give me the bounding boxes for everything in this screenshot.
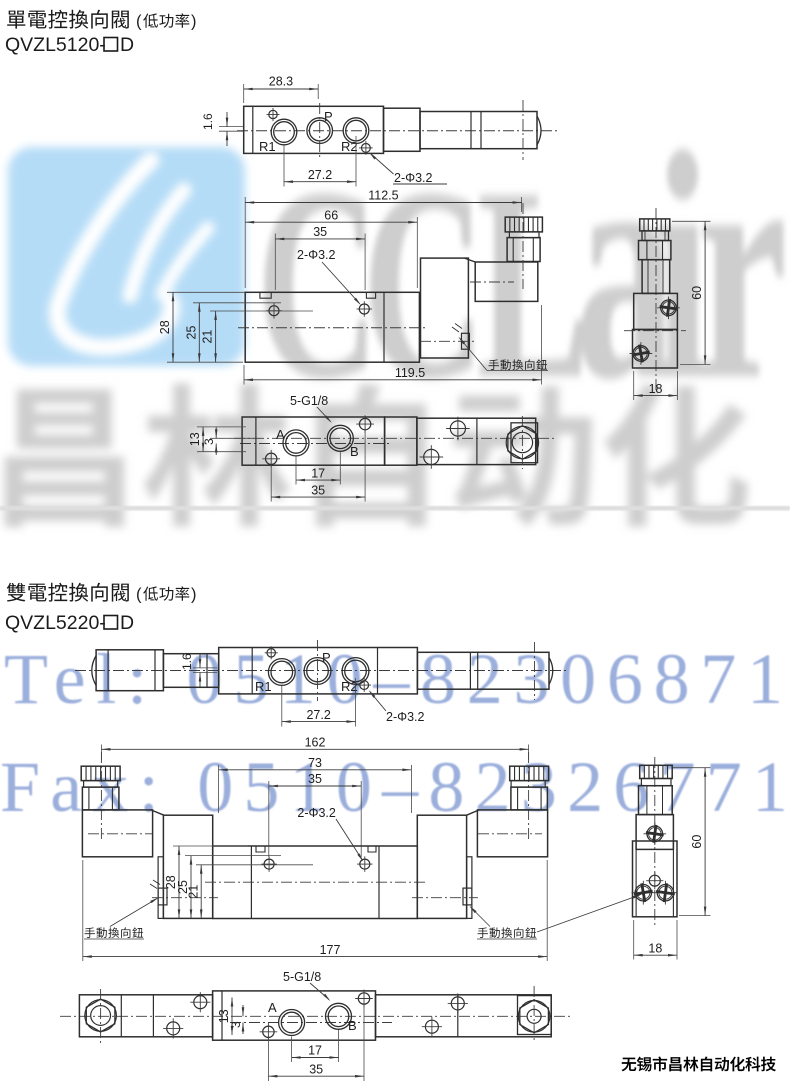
svg-text:(: (: [136, 13, 142, 31]
svg-text:D: D: [120, 612, 134, 634]
svg-text:60: 60: [690, 835, 704, 849]
svg-text:17: 17: [308, 1044, 322, 1058]
svg-text:162: 162: [305, 736, 326, 750]
svg-text:A: A: [268, 1000, 277, 1015]
svg-text:P: P: [324, 109, 333, 124]
svg-text:R2: R2: [341, 139, 358, 154]
svg-text:13: 13: [217, 1009, 231, 1023]
svg-text:21: 21: [186, 885, 200, 899]
svg-text:27.2: 27.2: [306, 708, 330, 722]
svg-text:3: 3: [202, 438, 216, 445]
svg-text:QVZL5220-: QVZL5220-: [5, 612, 106, 634]
svg-text:5-G1/8: 5-G1/8: [283, 970, 321, 984]
svg-text:18: 18: [648, 941, 662, 955]
svg-text:60: 60: [690, 286, 704, 300]
svg-text:2-Φ3.2: 2-Φ3.2: [297, 806, 336, 820]
svg-text:35: 35: [309, 1062, 323, 1076]
svg-text:1.6: 1.6: [201, 113, 215, 130]
svg-text:28: 28: [158, 320, 172, 334]
svg-text:35: 35: [313, 225, 327, 239]
svg-text:21: 21: [201, 330, 215, 344]
svg-text:D: D: [120, 34, 134, 56]
svg-text:25: 25: [184, 326, 198, 340]
svg-text:35: 35: [308, 772, 322, 786]
svg-text:R1: R1: [255, 679, 272, 694]
svg-text:73: 73: [308, 756, 322, 770]
svg-text:B: B: [350, 444, 359, 459]
svg-text:177: 177: [320, 943, 341, 957]
svg-text:2-Φ3.2: 2-Φ3.2: [386, 710, 425, 724]
svg-text:R1: R1: [259, 139, 276, 154]
svg-text:3: 3: [229, 1021, 243, 1028]
svg-text:2-Φ3.2: 2-Φ3.2: [394, 171, 433, 185]
svg-text:35: 35: [311, 483, 325, 497]
svg-text:QVZL5120-: QVZL5120-: [5, 34, 106, 56]
svg-text:17: 17: [311, 466, 325, 480]
svg-text:5-G1/8: 5-G1/8: [290, 394, 328, 408]
svg-text:B: B: [348, 1018, 357, 1033]
svg-text:2-Φ3.2: 2-Φ3.2: [297, 248, 336, 262]
svg-text:P: P: [322, 650, 331, 665]
svg-text:112.5: 112.5: [368, 189, 398, 203]
svg-text:): ): [191, 13, 197, 31]
svg-text:13: 13: [188, 432, 202, 446]
svg-text:(: (: [136, 586, 142, 604]
svg-text:r: r: [698, 88, 787, 446]
svg-text:): ): [191, 586, 197, 604]
svg-text:L: L: [477, 133, 590, 435]
svg-text:A: A: [276, 427, 285, 442]
svg-text:1.6: 1.6: [180, 653, 194, 670]
svg-text:18: 18: [649, 382, 663, 396]
svg-text:28.3: 28.3: [269, 75, 293, 89]
svg-text:119.5: 119.5: [395, 366, 425, 380]
svg-text:66: 66: [324, 208, 338, 222]
svg-text:Tel: 0510–82306871: Tel: 0510–82306871: [4, 639, 783, 719]
svg-text:27.2: 27.2: [308, 168, 332, 182]
